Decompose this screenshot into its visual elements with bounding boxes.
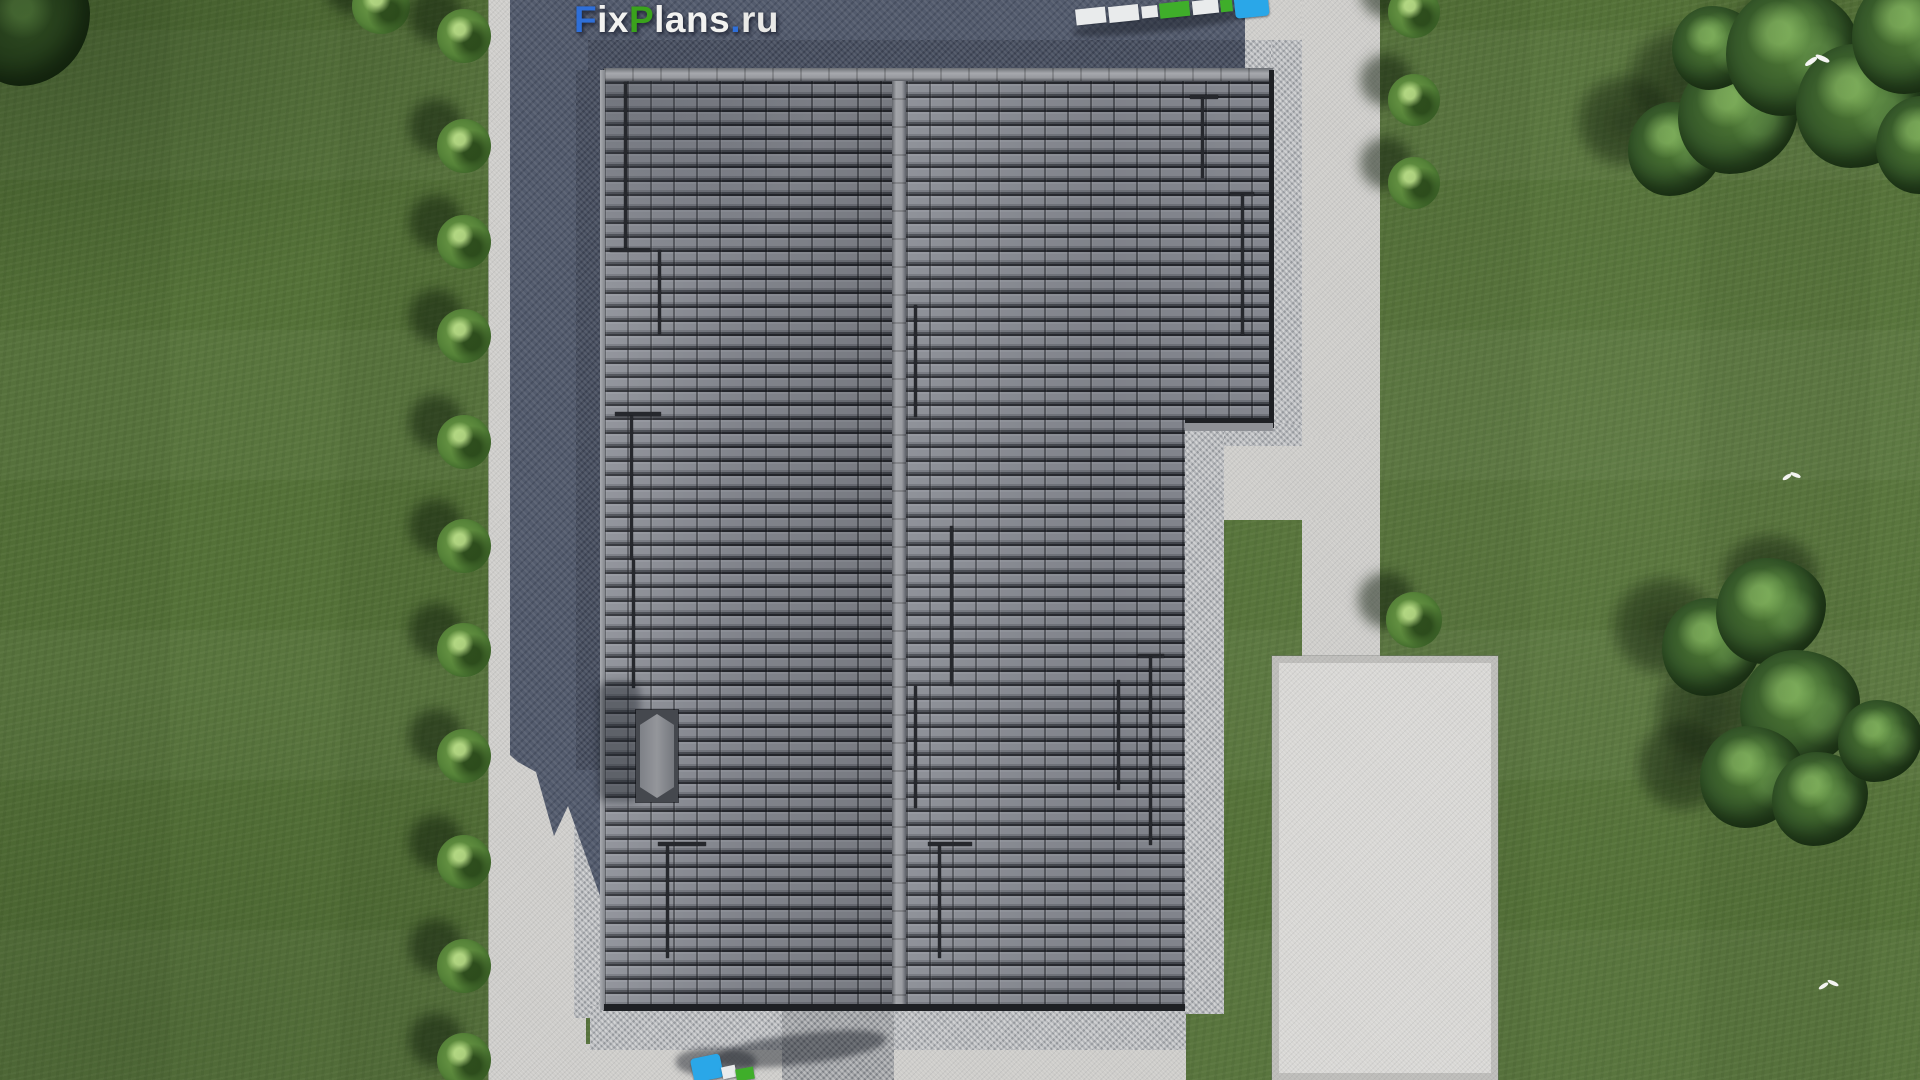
bush xyxy=(437,119,491,173)
bird xyxy=(1782,468,1802,484)
truck-cargo xyxy=(1141,5,1158,19)
logo-letter: F xyxy=(574,0,597,40)
bush xyxy=(1388,74,1440,126)
bird xyxy=(1818,976,1840,994)
roof-bar xyxy=(610,248,650,252)
eave-left xyxy=(600,70,605,1010)
roof-bar xyxy=(632,560,635,688)
bird xyxy=(1804,50,1832,72)
chimney xyxy=(636,710,678,802)
bush xyxy=(437,1033,491,1080)
truck-cargo xyxy=(1220,0,1233,12)
bush xyxy=(1388,157,1440,209)
roof-bar xyxy=(666,846,669,958)
chimney-cap xyxy=(640,714,674,798)
roof-bar xyxy=(1241,195,1244,335)
chimney-shadow xyxy=(598,682,640,802)
roof-bar xyxy=(630,416,633,560)
bush xyxy=(437,835,491,889)
roof-bar xyxy=(914,686,917,808)
bush xyxy=(437,415,491,469)
bush xyxy=(437,215,491,269)
roof-bar xyxy=(658,250,661,334)
roof-bar xyxy=(914,305,917,417)
fixplans-watermark: FixPlans.ru xyxy=(574,0,779,40)
roof-bar xyxy=(950,526,953,686)
roof-ridge xyxy=(892,70,906,1010)
walkway-right xyxy=(1302,0,1380,660)
bush xyxy=(437,9,491,63)
bush xyxy=(1386,592,1442,648)
logo-letter: lans xyxy=(654,0,730,40)
bush xyxy=(437,729,491,783)
bush xyxy=(437,939,491,993)
roof-bar xyxy=(1190,95,1218,99)
truck-cargo xyxy=(1159,1,1190,19)
roof-bar xyxy=(938,846,941,958)
roof-bar xyxy=(1201,98,1204,178)
roof-bar xyxy=(615,412,661,416)
car-cargo xyxy=(735,1067,755,1080)
logo-letter: . xyxy=(730,0,741,40)
logo-letter: P xyxy=(629,0,654,40)
eave-bottom xyxy=(604,1004,1185,1011)
roof-bar xyxy=(1149,657,1152,845)
logo-letter: ix xyxy=(597,0,629,40)
fascia-notch xyxy=(1185,423,1273,431)
roof-bar xyxy=(1117,680,1120,790)
aerial-house-render: FixPlans.ru xyxy=(0,0,1920,1080)
bush xyxy=(437,309,491,363)
bush xyxy=(437,623,491,677)
truck-cargo xyxy=(1075,6,1107,25)
parking-pad xyxy=(1272,656,1498,1080)
bush xyxy=(437,519,491,573)
patio xyxy=(1218,438,1380,520)
roof-left-section xyxy=(604,70,892,1010)
truck-cargo xyxy=(1108,4,1140,23)
car-cab xyxy=(690,1053,724,1080)
eave-right xyxy=(1269,70,1274,428)
roof-bar xyxy=(624,82,627,250)
truck-cargo xyxy=(1192,0,1219,15)
logo-letter: ru xyxy=(741,0,779,40)
roof-bar xyxy=(928,842,972,846)
roof-ridge-cap-top xyxy=(604,68,1273,81)
gravel-border-right xyxy=(1271,40,1302,444)
